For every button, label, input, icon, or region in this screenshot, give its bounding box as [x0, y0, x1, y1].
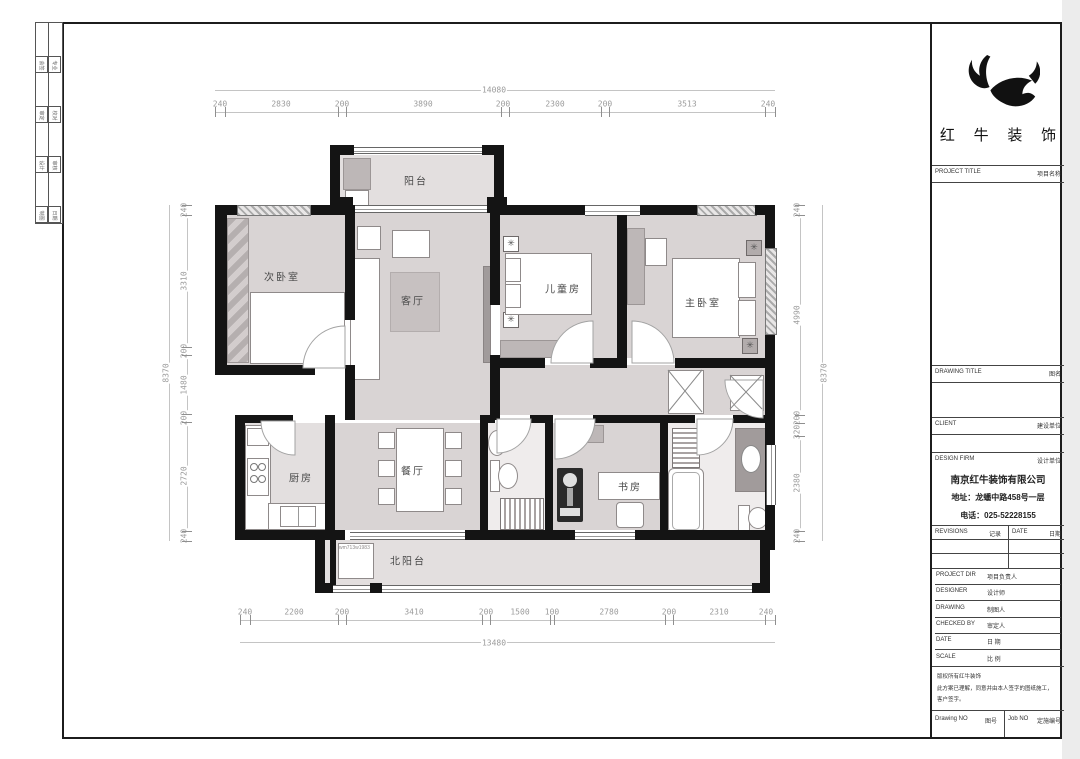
project-title-cn: 项目名称 — [1037, 169, 1061, 178]
dim-tick — [601, 107, 602, 117]
dim-label: 200 — [180, 343, 189, 359]
dim-label: 3513 — [676, 100, 697, 109]
ceiling-fan-icon: ✳ — [503, 236, 519, 252]
strip-label: 校对 — [51, 109, 58, 122]
titleblock-row: DATE日 期 — [935, 633, 1061, 650]
chair — [445, 488, 462, 505]
chair — [378, 488, 395, 505]
master-side-window — [765, 248, 777, 335]
wardrobe — [227, 218, 249, 363]
ceiling-fan-icon: ✳ — [746, 240, 762, 256]
drawing-no-cn: 图号 — [985, 716, 997, 725]
double-sink — [280, 506, 316, 527]
dim-tick — [346, 615, 347, 625]
dim-tick — [795, 541, 805, 542]
client-cn: 建设单位 — [1037, 421, 1061, 430]
dim-tick — [795, 436, 805, 437]
row-label-en: CHECKED BY — [936, 621, 975, 627]
row-label-en: SCALE — [936, 654, 956, 660]
shower-rack — [500, 498, 544, 530]
dim-label: 100 — [544, 608, 560, 617]
row-label-en: DATE — [936, 637, 952, 643]
dim-tick — [182, 347, 192, 348]
strip-label: 专业 — [51, 59, 58, 72]
dim-tick — [673, 615, 674, 625]
window-hatch — [237, 205, 311, 216]
dim-label: 200 — [334, 100, 350, 109]
dim-label: 2830 — [270, 100, 291, 109]
dim-tick — [240, 615, 241, 625]
dim-tick — [338, 615, 339, 625]
revisions-cn: 记录 — [989, 529, 1001, 538]
dim-tick — [795, 415, 805, 416]
ceiling-fan-icon: ✳ — [742, 338, 758, 354]
dim-left-total: 8370 — [162, 362, 171, 383]
balcony-slider — [355, 205, 487, 213]
dim-label: 200 — [661, 608, 677, 617]
dim-tick — [554, 615, 555, 625]
ac-unit — [357, 226, 381, 250]
north-balcony-window — [333, 585, 753, 593]
dim-tick — [182, 414, 192, 415]
dim-label: 2380 — [793, 472, 802, 493]
dim-label: 3890 — [412, 100, 433, 109]
strip-label: 日期 — [51, 209, 58, 222]
dim-tick — [765, 615, 766, 625]
dim-right-total: 8370 — [820, 362, 829, 383]
bed-secondary — [250, 292, 345, 364]
client-en: CLIENT — [935, 421, 956, 430]
room-label-living: 客厅 — [401, 293, 425, 308]
room-label-children: 儿童房 — [545, 281, 581, 296]
dim-tick — [795, 215, 805, 216]
room-label-dining: 餐厅 — [401, 463, 425, 478]
dim-tick — [795, 531, 805, 532]
disclaimer-line: 此方案已理解，同意并由本人签字的图纸施工， — [937, 684, 1060, 696]
titleblock-row: PROJECT DIR项目负责人 — [935, 568, 1061, 585]
chair — [445, 432, 462, 449]
dim-tick — [215, 107, 216, 117]
pillow — [505, 284, 521, 308]
room-label-master: 主卧室 — [685, 295, 721, 310]
chair — [378, 432, 395, 449]
dim-label: 1480 — [180, 374, 189, 395]
closet — [730, 375, 764, 411]
dim-tick — [346, 107, 347, 117]
balcony-cabinet — [343, 158, 371, 190]
drawing-title-cn: 图名 — [1049, 369, 1061, 378]
red-bull-logo — [960, 50, 1040, 116]
dim-label: 2780 — [598, 608, 619, 617]
master-window — [697, 205, 757, 216]
burner-icons — [248, 459, 268, 495]
dim-label: 2300 — [544, 100, 565, 109]
row-label-cn: 项目负责人 — [987, 572, 1017, 581]
dim-tick — [501, 107, 502, 117]
dim-tick — [182, 531, 192, 532]
dim-label: 1500 — [509, 608, 530, 617]
dim-label: 320 — [793, 424, 802, 440]
dim-tick — [182, 422, 192, 423]
binding-strip: 会签 专业 审定 校对 设计 审核 制图 日期 — [35, 22, 63, 224]
dim-label: 2200 — [283, 608, 304, 617]
dim-label: 3310 — [180, 270, 189, 291]
dim-tick — [550, 615, 551, 625]
wardrobe-master — [627, 228, 645, 305]
bathtub — [668, 468, 704, 534]
equipment-icon — [557, 468, 583, 522]
company-address: 地址：龙蟠中路458号一层 — [932, 492, 1064, 503]
dim-tick — [795, 205, 805, 206]
dim-label: 240 — [758, 608, 774, 617]
dim-label: 4990 — [793, 304, 802, 325]
row-label-cn: 比 例 — [987, 654, 1001, 663]
dim-tick — [509, 107, 510, 117]
row-label-cn: 制图人 — [987, 605, 1005, 614]
strip-label: 会签 — [38, 59, 45, 72]
row-label-cn: 审定人 — [987, 621, 1005, 630]
chair — [445, 460, 462, 477]
disclaimer-line: 版权所有红牛装饰 — [937, 672, 1060, 684]
dim-label: 200 — [334, 608, 350, 617]
job-no-cn: 定施编号 — [1037, 716, 1061, 725]
dim-tick — [609, 107, 610, 117]
towel-rack — [672, 428, 700, 468]
dim-tick — [182, 215, 192, 216]
dim-tick — [775, 107, 776, 117]
dim-tick — [338, 107, 339, 117]
bath-window — [766, 445, 776, 505]
room-label-north-balcony: 北阳台 — [390, 553, 426, 568]
dim-tick — [182, 355, 192, 356]
balcony-window — [354, 147, 482, 154]
design-firm-cn: 设计单位 — [1037, 456, 1061, 465]
job-no-en: Job NO — [1008, 716, 1028, 725]
dim-label: 2720 — [180, 465, 189, 486]
pillow — [738, 300, 756, 336]
washer-note: wm713w1983 — [339, 545, 370, 551]
dim-top-total: 14080 — [481, 86, 507, 95]
chair — [378, 460, 395, 477]
vanity-counter — [735, 428, 767, 492]
dim-label: 200 — [597, 100, 613, 109]
sink — [488, 430, 506, 456]
dim-tick — [795, 423, 805, 424]
drawing-sheet: ✳ ✳ ✳ ✳ — [0, 0, 1080, 759]
disclaimer-line: 客户签字。 — [937, 695, 1060, 707]
drawing-no-en: Drawing NO — [935, 716, 968, 725]
row-label-en: PROJECT DIR — [936, 572, 976, 578]
titleblock-row: SCALE比 例 — [935, 650, 1061, 667]
shelf — [556, 425, 604, 443]
dim-tick — [665, 615, 666, 625]
room-label-study: 书房 — [618, 479, 642, 494]
dim-tick — [482, 615, 483, 625]
pillow — [505, 258, 521, 282]
nightstand — [645, 238, 667, 266]
row-label-cn: 日 期 — [987, 637, 1001, 646]
dim-tick — [182, 205, 192, 206]
children-window — [585, 205, 640, 216]
desk-children — [500, 340, 568, 358]
design-firm-en: DESIGN FIRM — [935, 456, 974, 465]
project-title-en: PROJECT TITLE — [935, 169, 981, 178]
dim-label: 200 — [180, 410, 189, 426]
toilet — [498, 463, 518, 489]
dim-tick — [182, 541, 192, 542]
strip-label: 审定 — [38, 109, 45, 122]
dim-label: 200 — [478, 608, 494, 617]
room-label-balcony: 阳台 — [404, 173, 428, 188]
date-hdr-en: DATE — [1012, 529, 1028, 538]
revisions-en: REVISIONS — [935, 529, 968, 538]
dim-label: 240 — [760, 100, 776, 109]
stove — [247, 458, 269, 496]
kitchen-sink — [247, 428, 269, 446]
dim-tick — [765, 107, 766, 117]
desk-chair — [616, 502, 644, 528]
dim-bottom-total: 13480 — [481, 639, 507, 648]
dim-label: 2310 — [708, 608, 729, 617]
date-hdr-cn: 日期 — [1049, 529, 1061, 538]
dim-tick — [775, 615, 776, 625]
room-label-secondary-bedroom: 次卧室 — [264, 269, 300, 284]
titleblock-row: DRAWING制图人 — [935, 601, 1061, 618]
closet — [668, 370, 704, 414]
row-label-en: DRAWING — [936, 605, 965, 611]
cabinet — [392, 230, 430, 258]
strip-label: 审核 — [51, 159, 58, 172]
row-label-en: DESIGNER — [936, 588, 967, 594]
dim-tick — [490, 615, 491, 625]
pillow — [738, 262, 756, 298]
strip-label: 设计 — [38, 159, 45, 172]
company-phone: 电话：025-52228155 — [932, 510, 1064, 521]
strip-label: 制图 — [38, 209, 45, 222]
title-block: 红 牛 装 饰 PROJECT TITLE 项目名称 DRAWING TITLE… — [930, 22, 1064, 737]
dim-label: 3410 — [403, 608, 424, 617]
room-label-kitchen: 厨房 — [289, 470, 313, 485]
brand-name: 红 牛 装 饰 — [932, 124, 1064, 145]
study-window — [575, 532, 635, 540]
dim-tick — [250, 615, 251, 625]
dining-balcony-slider — [350, 532, 465, 540]
drawing-title-en: DRAWING TITLE — [935, 369, 982, 378]
titleblock-row: CHECKED BY审定人 — [935, 617, 1061, 634]
dim-tick — [225, 107, 226, 117]
exercise-equipment — [557, 468, 583, 522]
page-right-shade — [1062, 0, 1080, 759]
titleblock-row: DESIGNER设计师 — [935, 584, 1061, 601]
company-name: 南京红牛装饰有限公司 — [932, 472, 1064, 486]
row-label-cn: 设计师 — [987, 588, 1005, 597]
